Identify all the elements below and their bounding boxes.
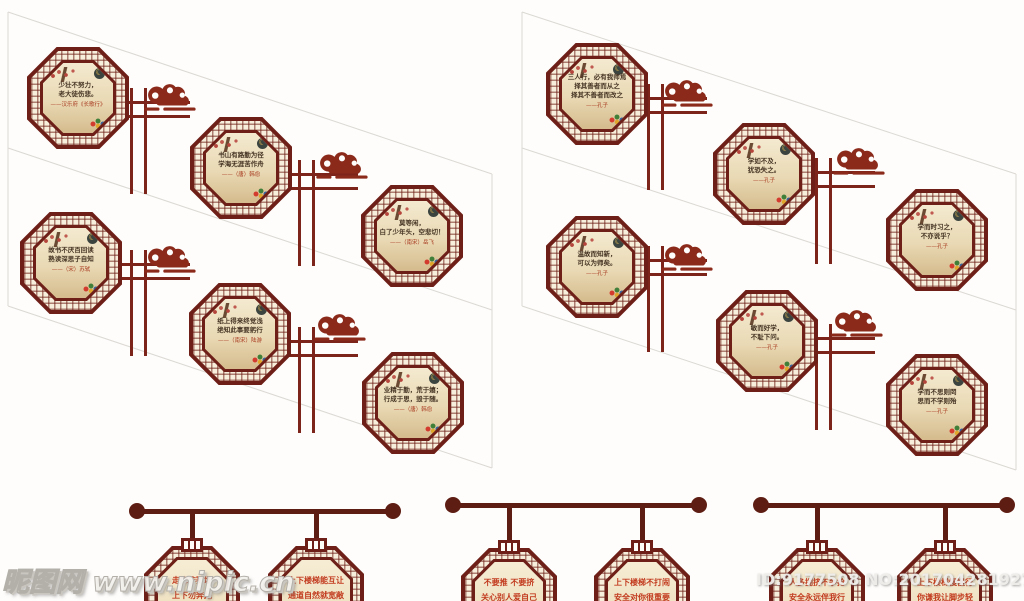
auspicious-cloud-icon (827, 142, 889, 180)
quote-attribution: ——（唐）韩愈 (384, 406, 443, 414)
quote-medallion: ☾ 莫等闲， 白了少年头，空悲切！ ——（南宋）岳飞 (361, 185, 463, 287)
rail-end-dot (445, 497, 461, 513)
medallion-parchment: ☾ 故书不厌百回读 熟读深思子自知 ——（宋）苏轼 (36, 228, 106, 298)
plaque-hanger-tab (631, 540, 653, 554)
rail-end-dot (691, 497, 707, 513)
plaque-stem (507, 505, 512, 544)
medallion-parchment: ☾ 学而时习之， 不亦说乎？ ——孔子 (902, 205, 972, 275)
quote-medallion: ☾ 三人行，必有我师焉 择其善者而从之 择其不善者而改之 ——孔子 (546, 43, 648, 145)
quote-attribution: ——汉乐府《长歌行》 (50, 101, 105, 109)
medallion-parchment: ☾ 莫等闲， 白了少年头，空悲切！ ——（南宋）岳飞 (377, 201, 447, 271)
medallion-parchment: ☾ 纸上得来终觉浅 绝知此事要躬行 ——（南宋）陆游 (205, 299, 275, 369)
quote-attribution: ——（唐）韩愈 (218, 171, 264, 179)
plaque-hanger-tab (806, 540, 828, 554)
plaque-hanger-tab (934, 540, 956, 554)
quote-medallion: ☾ 业精于勤，荒于嬉； 行成于思，毁于随。 ——（唐）韩愈 (362, 352, 464, 454)
quote-medallion: ☾ 温故而知新， 可以为师矣。 ——孔子 (546, 216, 648, 318)
rail-end-dot (129, 503, 145, 519)
quote-medallion: ☾ 少壮不努力， 老大徒伤悲。 ——汉乐府《长歌行》 (27, 47, 129, 149)
medallion-parchment: ☾ 温故而知新， 可以为师矣。 ——孔子 (562, 232, 632, 302)
site-watermark: 昵图网 www.nipic.cn (2, 560, 294, 599)
quote-text: 书山有路勤为径 学海无涯苦作舟 ——（唐）韩愈 (218, 151, 264, 179)
quote-text: 学而时习之， 不亦说乎？ ——孔子 (918, 223, 957, 251)
quote-text: 敏而好学， 不耻下问。 ——孔子 (751, 324, 784, 352)
rail-end-dot (753, 497, 769, 513)
quote-attribution: ——孔子 (751, 344, 784, 352)
plaque-stem (640, 505, 645, 544)
slogan-plaque: 上下楼梯不打闹 安全对你很重要 (594, 548, 690, 601)
quote-attribution: ——（宋）苏轼 (48, 266, 94, 274)
auspicious-cloud-icon (655, 74, 717, 112)
slogan-plaque: 不要推 不要挤 关心别人爱自己 (461, 548, 557, 601)
quote-text: 故书不厌百回读 熟读深思子自知 ——（宋）苏轼 (48, 246, 94, 274)
quote-text: 少壮不努力， 老大徒伤悲。 ——汉乐府《长歌行》 (50, 81, 105, 109)
quote-medallion: ☾ 故书不厌百回读 熟读深思子自知 ——（宋）苏轼 (20, 212, 122, 314)
quote-attribution: ——（南宋）陆游 (217, 337, 263, 345)
quote-attribution: ——孔子 (918, 243, 957, 251)
quote-medallion: ☾ 敏而好学， 不耻下问。 ——孔子 (716, 290, 818, 392)
medallion-parchment: ☾ 业精于勤，荒于嬉； 行成于思，毁于随。 ——（唐）韩愈 (378, 368, 448, 438)
quote-attribution: ——孔子 (918, 408, 957, 416)
plaque-hanger-tab (181, 538, 203, 552)
medallion-parchment: ☾ 学如不及， 犹恐失之。 ——孔子 (729, 139, 799, 209)
medallion-parchment: ☾ 学而不思则罔 思而不学则殆 ——孔子 (902, 370, 972, 440)
auspicious-cloud-icon (138, 240, 200, 278)
quote-text: 三人行，必有我师焉 择其善者而从之 择其不善者而改之 ——孔子 (568, 73, 627, 110)
quote-text: 学而不思则罔 思而不学则殆 ——孔子 (918, 388, 957, 416)
quote-text: 业精于勤，荒于嬉； 行成于思，毁于随。 ——（唐）韩愈 (384, 386, 443, 414)
rail-end-dot (385, 503, 401, 519)
rail-end-dot (999, 497, 1015, 513)
quote-medallion: ☾ 学如不及， 犹恐失之。 ——孔子 (713, 123, 815, 225)
medallion-parchment: ☾ 少壮不努力， 老大徒伤悲。 ——汉乐府《长歌行》 (43, 63, 113, 133)
hanging-rail (133, 509, 397, 514)
plaque-hanger-tab (305, 538, 327, 552)
hanging-rail (757, 503, 1011, 508)
auspicious-cloud-icon (308, 308, 370, 346)
plaque-stem (815, 505, 820, 544)
quote-text: 温故而知新， 可以为师矣。 ——孔子 (578, 250, 617, 278)
auspicious-cloud-icon (825, 304, 887, 342)
quote-medallion: ☾ 纸上得来终觉浅 绝知此事要躬行 ——（南宋）陆游 (189, 283, 291, 385)
quote-attribution: ——孔子 (568, 102, 627, 110)
quote-medallion: ☾ 书山有路勤为径 学海无涯苦作舟 ——（唐）韩愈 (190, 117, 292, 219)
plaque-stem (943, 505, 948, 544)
auspicious-cloud-icon (655, 238, 717, 276)
medallion-parchment: ☾ 三人行，必有我师焉 择其善者而从之 择其不善者而改之 ——孔子 (562, 59, 632, 129)
quote-text: 莫等闲， 白了少年头，空悲切！ ——（南宋）岳飞 (380, 219, 445, 247)
stock-id-watermark: ID:9177508 NO:20170428192727050030 (756, 570, 1024, 589)
quote-medallion: ☾ 学而不思则罔 思而不学则殆 ——孔子 (886, 354, 988, 456)
quote-attribution: ——孔子 (748, 177, 781, 185)
auspicious-cloud-icon (138, 78, 200, 116)
medallion-parchment: ☾ 敏而好学， 不耻下问。 ——孔子 (732, 306, 802, 376)
quote-attribution: ——孔子 (578, 270, 617, 278)
quote-medallion: ☾ 学而时习之， 不亦说乎？ ——孔子 (886, 189, 988, 291)
plaque-hanger-tab (498, 540, 520, 554)
design-canvas: ☾ 少壮不努力， 老大徒伤悲。 ——汉乐府《长歌行》 ☾ 书山有路勤为径 学海无… (0, 0, 1024, 601)
medallion-parchment: ☾ 书山有路勤为径 学海无涯苦作舟 ——（唐）韩愈 (206, 133, 276, 203)
quote-text: 学如不及， 犹恐失之。 ——孔子 (748, 157, 781, 185)
quote-text: 纸上得来终觉浅 绝知此事要躬行 ——（南宋）陆游 (217, 317, 263, 345)
auspicious-cloud-icon (310, 146, 372, 184)
quote-attribution: ——（南宋）岳飞 (380, 239, 445, 247)
hanging-rail (449, 503, 703, 508)
